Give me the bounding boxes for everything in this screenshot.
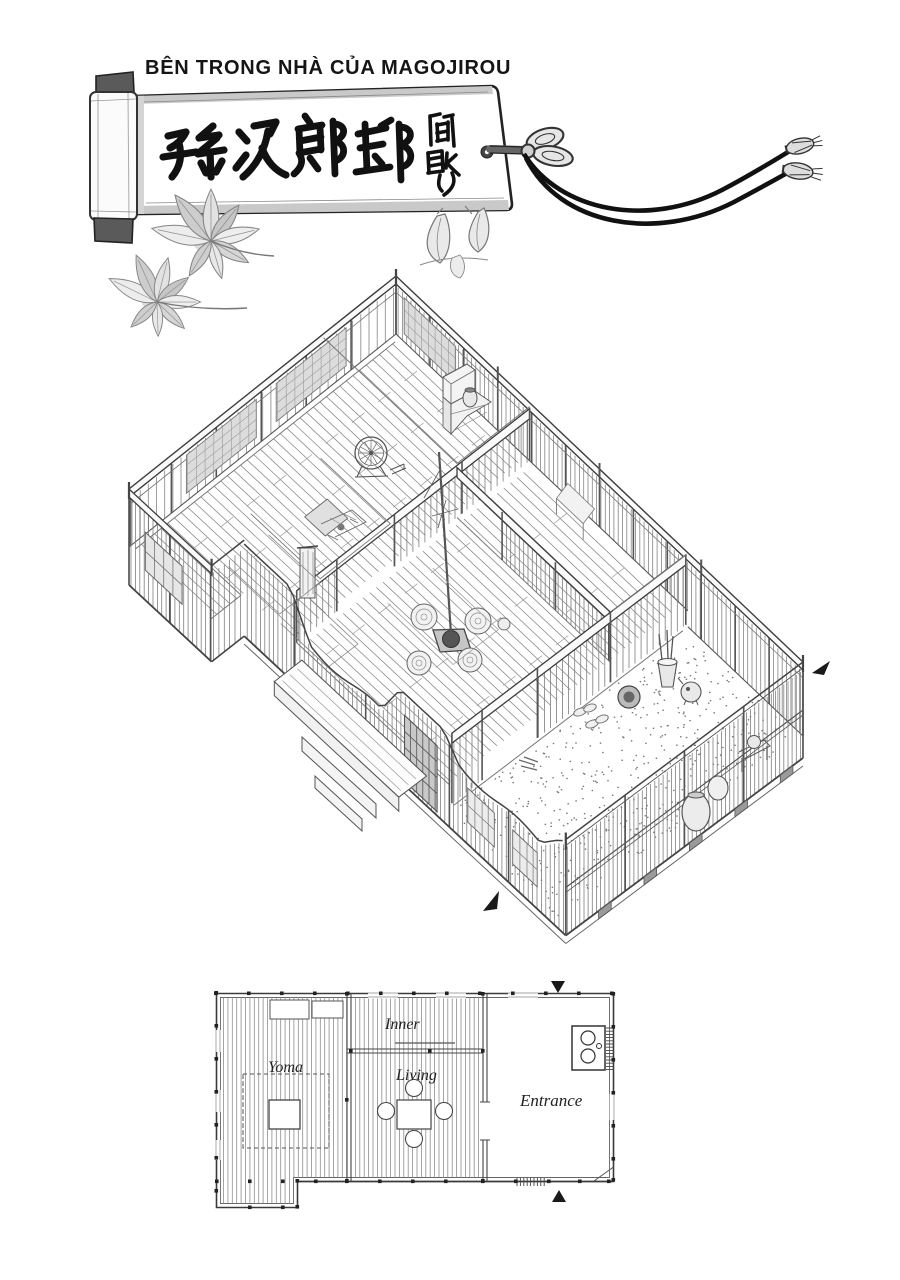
- svg-text:Inner: Inner: [384, 1016, 420, 1033]
- svg-text:Yoma: Yoma: [268, 1059, 303, 1076]
- svg-text:Entrance: Entrance: [519, 1091, 583, 1110]
- svg-text:Living: Living: [395, 1067, 437, 1084]
